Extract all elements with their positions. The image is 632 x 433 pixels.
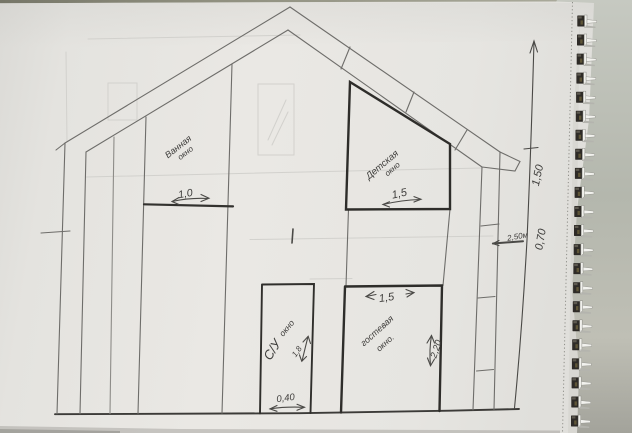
- svg-text:1,5: 1,5: [378, 291, 396, 305]
- svg-text:1,0: 1,0: [177, 187, 194, 201]
